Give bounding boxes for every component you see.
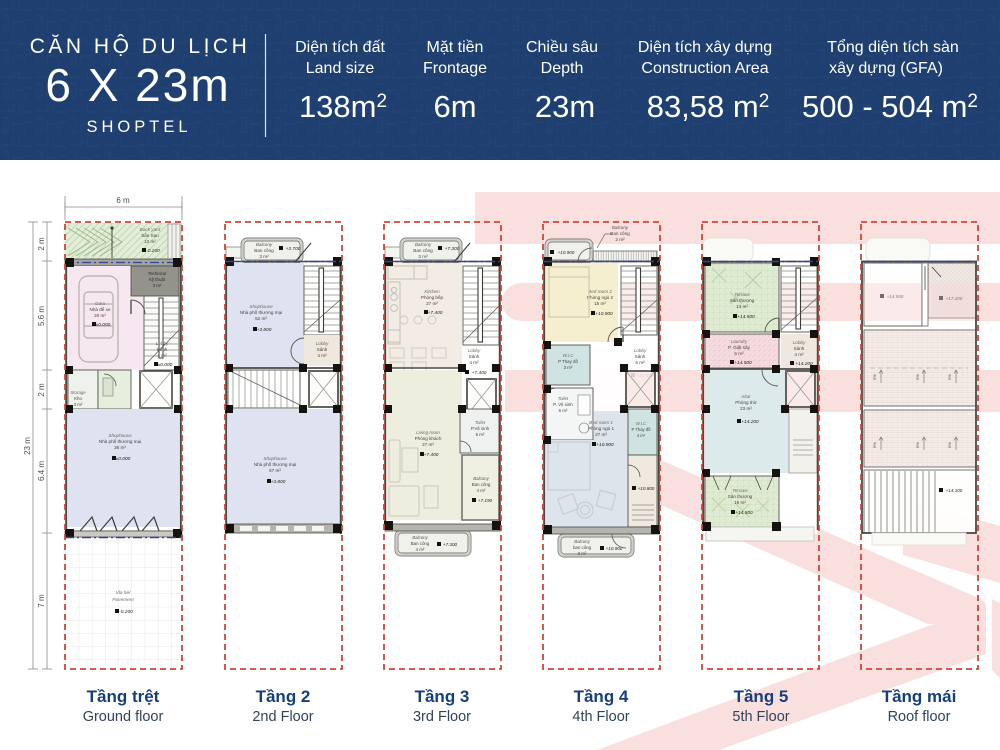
- svg-text:Ban công: Ban công: [411, 541, 430, 546]
- svg-text:5 m²: 5 m²: [476, 432, 485, 437]
- svg-text:+7.300: +7.300: [445, 246, 460, 252]
- svg-text:+10.900: +10.900: [558, 250, 575, 255]
- svg-text:Tầng 4: Tầng 4: [574, 687, 629, 706]
- svg-text:Mặt tiền: Mặt tiền: [427, 39, 484, 56]
- svg-text:4 m²: 4 m²: [157, 353, 167, 358]
- svg-text:Lobby: Lobby: [468, 348, 481, 353]
- svg-text:2 m: 2 m: [37, 237, 46, 251]
- svg-text:Sảnh: Sảnh: [635, 354, 646, 359]
- svg-text:CĂN HỘ DU LỊCH: CĂN HỘ DU LỊCH: [30, 35, 251, 58]
- svg-text:Roof floor: Roof floor: [888, 709, 951, 725]
- svg-text:Balcony: Balcony: [473, 476, 489, 481]
- svg-text:Balcony: Balcony: [612, 225, 629, 230]
- svg-text:Phòng ngủ 1: Phòng ngủ 1: [588, 425, 615, 431]
- svg-text:+7.400: +7.400: [424, 452, 439, 458]
- svg-text:5%: 5%: [872, 374, 877, 380]
- svg-text:+10.900: +10.900: [596, 442, 614, 448]
- svg-text:5.6 m: 5.6 m: [37, 306, 46, 326]
- svg-text:Sảnh: Sảnh: [157, 347, 168, 352]
- svg-text:23 m: 23 m: [23, 437, 32, 455]
- svg-text:Toilet: Toilet: [475, 420, 486, 425]
- svg-text:Storage: Storage: [70, 390, 86, 395]
- svg-text:Lobby: Lobby: [156, 341, 169, 346]
- svg-text:Chiều sâu: Chiều sâu: [526, 39, 598, 56]
- svg-text:3 m²: 3 m²: [74, 402, 83, 407]
- svg-text:5th Floor: 5th Floor: [732, 709, 789, 725]
- svg-text:Sân thượng: Sân thượng: [728, 494, 753, 499]
- svg-text:Construction Area: Construction Area: [641, 60, 768, 77]
- svg-text:15 m²: 15 m²: [594, 301, 606, 306]
- svg-text:P. Vệ sinh: P. Vệ sinh: [553, 402, 573, 407]
- svg-text:+14.100: +14.100: [946, 488, 963, 493]
- svg-text:Terrace: Terrace: [734, 292, 750, 297]
- svg-text:500 - 504 m2: 500 - 504 m2: [802, 89, 978, 124]
- svg-text:Sảnh: Sảnh: [317, 347, 328, 352]
- svg-text:xây dựng (GFA): xây dựng (GFA): [829, 60, 943, 77]
- svg-text:Nhà phố thương mại: Nhà phố thương mại: [254, 462, 296, 467]
- svg-text:3 m²: 3 m²: [418, 254, 428, 259]
- svg-text:Ground floor: Ground floor: [83, 709, 164, 725]
- svg-text:6.4 m: 6.4 m: [37, 461, 46, 481]
- svg-text:-0.200: -0.200: [119, 609, 133, 615]
- svg-text:Balcony: Balcony: [574, 539, 590, 544]
- svg-text:6 m²: 6 m²: [734, 351, 744, 356]
- svg-text:Diện tích đất: Diện tích đất: [295, 39, 385, 56]
- svg-text:Pavement: Pavement: [112, 597, 134, 603]
- svg-text:52 m²: 52 m²: [255, 316, 267, 321]
- svg-text:4 m²: 4 m²: [469, 360, 479, 365]
- svg-text:SHOPTEL: SHOPTEL: [86, 118, 191, 136]
- svg-text:3rd Floor: 3rd Floor: [413, 709, 471, 725]
- svg-text:+10.800: +10.800: [638, 486, 655, 491]
- svg-text:+3.800: +3.800: [271, 479, 286, 485]
- svg-text:Ban công: Ban công: [610, 231, 630, 236]
- svg-text:Nhà phố thương mại: Nhà phố thương mại: [240, 310, 282, 315]
- svg-text:Terrace: Terrace: [732, 488, 748, 493]
- svg-text:Shophouse: Shophouse: [108, 433, 132, 438]
- svg-text:19 m²: 19 m²: [734, 500, 746, 505]
- svg-text:Diện tích xây dựng: Diện tích xây dựng: [638, 39, 772, 56]
- svg-text:4 m²: 4 m²: [794, 352, 804, 357]
- svg-text:ban công: ban công: [573, 545, 592, 550]
- svg-text:Balcony: Balcony: [256, 242, 273, 247]
- svg-text:Land size: Land size: [306, 60, 375, 77]
- svg-text:Technical: Technical: [148, 271, 167, 276]
- svg-text:Lobby: Lobby: [316, 341, 329, 346]
- svg-text:4 m²: 4 m²: [477, 488, 486, 493]
- svg-text:Tổng diện tích sàn: Tổng diện tích sàn: [827, 38, 959, 56]
- svg-text:20 m²: 20 m²: [94, 313, 106, 318]
- svg-text:Tầng 2: Tầng 2: [256, 687, 311, 706]
- svg-text:5%: 5%: [947, 374, 952, 380]
- svg-text:Laundry: Laundry: [731, 339, 748, 344]
- svg-text:83,58 m2: 83,58 m2: [647, 89, 770, 124]
- svg-text:4 m²: 4 m²: [416, 547, 425, 552]
- svg-text:+14.500: +14.500: [734, 360, 752, 366]
- svg-text:Ban công: Ban công: [472, 482, 491, 487]
- svg-text:Tầng 5: Tầng 5: [734, 687, 789, 706]
- svg-text:W.I.C: W.I.C: [563, 353, 575, 358]
- svg-text:+3.800: +3.800: [257, 327, 272, 333]
- svg-text:P.Vệ sinh: P.Vệ sinh: [471, 426, 490, 431]
- svg-text:W.I.C: W.I.C: [636, 421, 647, 426]
- svg-text:2 m: 2 m: [37, 383, 46, 397]
- svg-text:36 m²: 36 m²: [114, 445, 126, 450]
- svg-text:Shophouse: Shophouse: [263, 456, 287, 461]
- svg-text:Bed room 2: Bed room 2: [588, 289, 612, 294]
- svg-text:Phòng khách: Phòng khách: [415, 436, 442, 441]
- svg-text:57 m²: 57 m²: [269, 468, 281, 473]
- svg-text:+7.300: +7.300: [443, 542, 458, 547]
- svg-text:Tầng mái: Tầng mái: [882, 687, 957, 706]
- svg-text:Lobby: Lobby: [793, 340, 806, 345]
- svg-text:23 m²: 23 m²: [740, 406, 752, 411]
- svg-text:Shophouse: Shophouse: [249, 304, 273, 309]
- svg-text:+14.500: +14.500: [737, 314, 755, 320]
- svg-text:±0.000: ±0.000: [116, 456, 131, 462]
- svg-text:4 m²: 4 m²: [317, 353, 327, 358]
- svg-text:6 m: 6 m: [116, 196, 130, 205]
- svg-text:P Thay đồ: P Thay đồ: [632, 427, 652, 432]
- svg-text:23m: 23m: [535, 89, 595, 124]
- svg-text:+7.400: +7.400: [472, 370, 487, 376]
- svg-text:+3.700: +3.700: [286, 246, 301, 252]
- svg-text:7 m: 7 m: [37, 594, 46, 608]
- svg-text:+14.200: +14.200: [741, 419, 759, 425]
- svg-text:Tầng 3: Tầng 3: [415, 687, 470, 706]
- svg-text:+7.190: +7.190: [478, 498, 493, 503]
- svg-text:6 m²: 6 m²: [635, 360, 645, 365]
- svg-text:Back yard: Back yard: [140, 227, 161, 232]
- svg-text:+10.900: +10.900: [595, 311, 613, 317]
- svg-text:6m: 6m: [433, 89, 476, 124]
- svg-text:138m2: 138m2: [299, 89, 387, 124]
- svg-text:3 m²: 3 m²: [153, 283, 162, 288]
- svg-text:Ban công: Ban công: [413, 248, 433, 253]
- svg-text:Lobby: Lobby: [634, 348, 647, 353]
- svg-text:Balcony: Balcony: [415, 242, 432, 247]
- svg-text:5%: 5%: [947, 442, 952, 448]
- svg-text:Altar: Altar: [740, 394, 751, 399]
- svg-text:3 m²: 3 m²: [564, 365, 573, 370]
- svg-text:Kỹ thuật: Kỹ thuật: [149, 277, 166, 282]
- svg-text:Sảnh: Sảnh: [469, 354, 480, 359]
- svg-text:27 m²: 27 m²: [422, 442, 434, 447]
- svg-text:Sảnh: Sảnh: [794, 346, 805, 351]
- svg-text:Depth: Depth: [541, 60, 584, 77]
- svg-text:5%: 5%: [915, 374, 920, 380]
- svg-text:10 m²: 10 m²: [144, 239, 156, 244]
- svg-text:3 m²: 3 m²: [578, 551, 587, 556]
- svg-text:P. Giặt sấy: P. Giặt sấy: [728, 345, 751, 350]
- svg-text:P Thay đồ: P Thay đồ: [558, 359, 578, 364]
- svg-text:Bed room 1: Bed room 1: [589, 420, 613, 425]
- svg-text:Sân thượng: Sân thượng: [730, 298, 755, 303]
- svg-text:Kho: Kho: [74, 396, 82, 401]
- svg-text:6 X 23m: 6 X 23m: [45, 59, 230, 111]
- svg-text:+14.500: +14.500: [735, 510, 753, 516]
- svg-text:Phòng thờ: Phòng thờ: [735, 400, 756, 405]
- svg-text:6 m²: 6 m²: [559, 408, 568, 413]
- svg-text:Tầng trệt: Tầng trệt: [87, 687, 160, 706]
- svg-text:27 m²: 27 m²: [426, 301, 438, 306]
- svg-text:3 m²: 3 m²: [259, 254, 269, 259]
- svg-text:Nhà phố thương mại: Nhà phố thương mại: [99, 439, 141, 444]
- svg-text:Kitchen: Kitchen: [424, 289, 440, 294]
- svg-text:2nd Floor: 2nd Floor: [252, 709, 313, 725]
- svg-text:Phòng ngủ 2: Phòng ngủ 2: [587, 294, 614, 300]
- svg-text:4 m²: 4 m²: [637, 433, 646, 438]
- svg-text:Ban công: Ban công: [254, 248, 274, 253]
- svg-text:Gara: Gara: [95, 301, 106, 306]
- svg-text:-0.200: -0.200: [146, 248, 160, 254]
- svg-text:±0.000: ±0.000: [158, 362, 173, 368]
- svg-text:+7.400: +7.400: [428, 310, 443, 316]
- svg-text:27 m²: 27 m²: [595, 432, 607, 437]
- svg-text:Sân Sau: Sân Sau: [141, 233, 159, 238]
- svg-text:5%: 5%: [915, 442, 920, 448]
- svg-text:Vỉa hè/: Vỉa hè/: [116, 589, 132, 596]
- svg-text:4th Floor: 4th Floor: [572, 709, 629, 725]
- svg-text:5%: 5%: [872, 442, 877, 448]
- svg-text:Toilet: Toilet: [558, 396, 569, 401]
- svg-text:Living room: Living room: [416, 430, 440, 435]
- svg-text:Balcony: Balcony: [412, 535, 428, 540]
- svg-text:Nhà để xe: Nhà để xe: [90, 306, 111, 312]
- svg-text:13 m²: 13 m²: [736, 304, 748, 309]
- svg-text:±0.000: ±0.000: [96, 322, 111, 328]
- svg-text:Frontage: Frontage: [423, 60, 487, 77]
- svg-text:2 m²: 2 m²: [615, 237, 625, 242]
- svg-text:Phòng bếp: Phòng bếp: [421, 295, 444, 300]
